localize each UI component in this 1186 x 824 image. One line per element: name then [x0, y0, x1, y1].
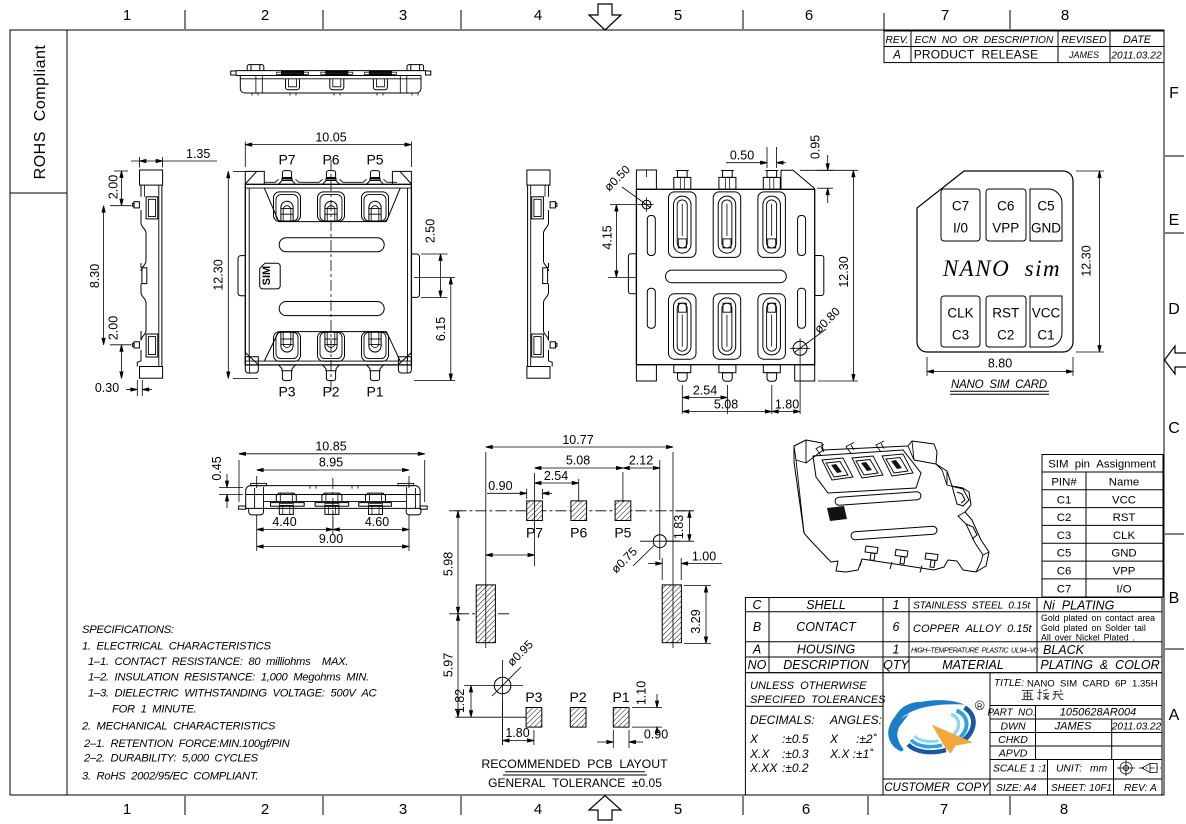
svg-text:5.97: 5.97 [442, 653, 456, 677]
svg-text:RST: RST [992, 306, 1019, 321]
svg-text:VCC: VCC [1112, 494, 1136, 506]
svg-text:CONTACT: CONTACT [796, 620, 857, 634]
svg-text:1: 1 [123, 801, 131, 818]
svg-text:VPP: VPP [992, 221, 1019, 236]
svg-text:6: 6 [893, 620, 900, 634]
svg-text:2.12: 2.12 [629, 454, 653, 468]
svg-text:ECN NO OR DESCRIPTION: ECN NO OR DESCRIPTION [915, 35, 1054, 46]
svg-text:CUSTOMER COPY: CUSTOMER COPY [884, 782, 990, 794]
svg-text:NO: NO [748, 658, 767, 672]
svg-text:10.85: 10.85 [315, 439, 346, 453]
svg-text:1: 1 [893, 643, 900, 657]
svg-text:SPECIFED TOLERANCES: SPECIFED TOLERANCES [750, 694, 886, 706]
svg-text:0.95: 0.95 [809, 135, 823, 159]
svg-text:SCALE 1 :1: SCALE 1 :1 [993, 764, 1047, 775]
svg-text:R: R [977, 701, 983, 710]
svg-text:1–3. DIELECTRIC WITHSTANDING: 1–3. DIELECTRIC WITHSTANDING VOLTAGE: 50… [88, 688, 378, 700]
svg-text:P7: P7 [526, 525, 543, 541]
svg-text:2. MECHANICAL CHARACTERISTIC: 2. MECHANICAL CHARACTERISTICS [81, 721, 276, 733]
svg-text::±0.2: :±0.2 [782, 761, 809, 775]
svg-text:1.35: 1.35 [186, 147, 210, 161]
svg-text:C6: C6 [997, 199, 1014, 214]
svg-text:GND: GND [1111, 548, 1136, 560]
svg-text::±0.3: :±0.3 [782, 747, 809, 761]
svg-text:1.83: 1.83 [672, 515, 686, 539]
svg-text:C5: C5 [1037, 199, 1054, 214]
svg-text:X: X [749, 732, 759, 746]
svg-text:CLK: CLK [1113, 530, 1136, 542]
svg-text:X.X: X.X [749, 747, 770, 761]
svg-text:Ni PLATING: Ni PLATING [1043, 599, 1115, 613]
svg-text:12.30: 12.30 [1080, 245, 1094, 276]
svg-text:NANO sim: NANO sim [942, 256, 1061, 281]
svg-text:1050628AR004: 1050628AR004 [1060, 707, 1136, 719]
svg-text:GND: GND [1031, 221, 1061, 236]
svg-text:7: 7 [940, 801, 948, 818]
svg-text:UNLESS OTHERWISE: UNLESS OTHERWISE [750, 680, 867, 692]
svg-text:8: 8 [1060, 801, 1068, 818]
svg-text:NANO SIM CARD 6P 1.35H: NANO SIM CARD 6P 1.35H [1027, 679, 1158, 690]
svg-text:5.98: 5.98 [442, 552, 456, 576]
svg-text:C7: C7 [952, 199, 969, 214]
svg-text:C2: C2 [997, 328, 1014, 343]
svg-text:C5: C5 [1057, 548, 1072, 560]
svg-text:ø0.50: ø0.50 [601, 162, 633, 194]
svg-text:CHKD: CHKD [998, 734, 1028, 746]
svg-text:SHELL: SHELL [806, 598, 846, 612]
svg-text:JAMES: JAMES [1054, 721, 1092, 733]
svg-text:BLACK: BLACK [1043, 643, 1085, 657]
svg-text:0.90: 0.90 [644, 728, 668, 742]
svg-text:C2: C2 [1057, 512, 1072, 524]
svg-text:B: B [753, 620, 761, 634]
svg-text:6: 6 [802, 801, 810, 818]
svg-text:VPP: VPP [1113, 566, 1136, 578]
svg-text:12.30: 12.30 [212, 259, 226, 290]
svg-text:Gold plated on contact area: Gold plated on contact area [1041, 613, 1155, 623]
svg-text:P2: P2 [570, 689, 587, 705]
svg-text:P7: P7 [278, 152, 295, 168]
svg-text:8.30: 8.30 [88, 264, 102, 288]
svg-text:5: 5 [674, 801, 682, 818]
svg-text:2.00: 2.00 [107, 316, 121, 340]
svg-text:1.80: 1.80 [505, 726, 529, 740]
svg-text:DATE: DATE [1123, 34, 1152, 46]
svg-text:C: C [1168, 420, 1180, 437]
svg-text:JAMES: JAMES [1068, 50, 1099, 60]
svg-text:MATERIAL: MATERIAL [942, 658, 1004, 672]
svg-text:STAINLESS STEEL 0.15t: STAINLESS STEEL 0.15t [913, 601, 1031, 612]
svg-text:QTY: QTY [883, 658, 910, 672]
svg-text:SPECIFICATIONS:: SPECIFICATIONS: [82, 624, 174, 636]
svg-text:0.50: 0.50 [730, 149, 754, 163]
svg-text:0.45: 0.45 [210, 456, 224, 480]
svg-text:PIN#: PIN# [1051, 477, 1077, 489]
svg-text:P5: P5 [366, 152, 383, 168]
svg-text:P6: P6 [322, 152, 339, 168]
svg-text:C1: C1 [1037, 328, 1054, 343]
svg-text:SIM pin Assignment: SIM pin Assignment [1048, 459, 1156, 471]
svg-text:PRODUCT RELEASE: PRODUCT RELEASE [914, 48, 1039, 62]
svg-text:DESCRIPTION: DESCRIPTION [783, 658, 869, 672]
svg-text:5.08: 5.08 [566, 454, 590, 468]
svg-text:FOR 1 MINUTE.: FOR 1 MINUTE. [112, 704, 197, 716]
svg-text:C: C [752, 598, 762, 612]
svg-text:P5: P5 [614, 525, 631, 541]
svg-text:SIM: SIM [261, 266, 273, 286]
svg-text:X.X :±1˚: X.X :±1˚ [829, 747, 874, 761]
svg-text:8.80: 8.80 [988, 357, 1012, 371]
svg-text:REV: A: REV: A [1124, 783, 1157, 794]
svg-text:PLATING & COLOR: PLATING & COLOR [1040, 658, 1159, 672]
svg-text:D: D [1168, 301, 1180, 318]
svg-text:SHEET: 10F1: SHEET: 10F1 [1051, 783, 1112, 794]
svg-text:C3: C3 [952, 328, 969, 343]
svg-text:8.95: 8.95 [319, 456, 343, 470]
svg-text:COPPER ALLOY 0.15t: COPPER ALLOY 0.15t [913, 623, 1033, 635]
svg-text:2–2. DURABILITY: 5,000 CYCL: 2–2. DURABILITY: 5,000 CYCLES [83, 753, 259, 765]
svg-text:2.00: 2.00 [107, 175, 121, 199]
svg-text:A: A [892, 50, 901, 62]
svg-text:6.15: 6.15 [434, 317, 448, 341]
svg-text:REVISED: REVISED [1061, 35, 1107, 46]
svg-text:ø0.80: ø0.80 [811, 304, 843, 336]
svg-text:7: 7 [941, 7, 949, 24]
svg-text:9.00: 9.00 [319, 532, 343, 546]
svg-text:5: 5 [674, 7, 682, 24]
svg-text:10.77: 10.77 [562, 433, 593, 447]
svg-text:HOUSING: HOUSING [797, 643, 856, 657]
svg-text:I/O: I/O [1116, 583, 1131, 595]
svg-text:I/0: I/0 [953, 221, 968, 236]
svg-text:2011.03.22: 2011.03.22 [1110, 51, 1162, 62]
svg-text:1. ELECTRICAL CHARACTERISTIC: 1. ELECTRICAL CHARACTERISTICS [82, 641, 271, 653]
svg-text:GENERAL TOLERANCE ±0.05: GENERAL TOLERANCE ±0.05 [488, 776, 662, 790]
svg-text:P1: P1 [613, 689, 630, 705]
svg-text:6: 6 [805, 7, 813, 24]
svg-text:ø0.75: ø0.75 [608, 544, 640, 576]
svg-text:12.30: 12.30 [837, 256, 851, 287]
svg-text:1.80: 1.80 [775, 397, 799, 411]
svg-text:P3: P3 [278, 384, 295, 400]
svg-text:REV.: REV. [885, 35, 908, 46]
svg-text:NANO SIM CARD: NANO SIM CARD [951, 379, 1047, 391]
svg-text:SIZE: A4: SIZE: A4 [996, 783, 1037, 794]
svg-text:TITLE:: TITLE: [994, 678, 1024, 689]
svg-text:P2: P2 [322, 384, 339, 400]
svg-text::±0.5: :±0.5 [782, 732, 809, 746]
svg-text:5.08: 5.08 [714, 397, 738, 411]
svg-text:Gold plated on Solder tail: Gold plated on Solder tail [1041, 623, 1146, 633]
svg-text:VCC: VCC [1032, 306, 1061, 321]
svg-text:2011.03.22: 2011.03.22 [1111, 722, 1162, 733]
svg-text:2: 2 [261, 7, 269, 24]
svg-text:2.50: 2.50 [424, 219, 438, 243]
svg-text:ø0.95: ø0.95 [504, 637, 536, 669]
svg-text:UNIT:: UNIT: [1056, 764, 1082, 775]
svg-text:4: 4 [534, 7, 542, 24]
svg-text:APVD: APVD [998, 748, 1028, 760]
svg-text:C3: C3 [1057, 530, 1072, 542]
svg-text:3. RoHS 2002/95/EC COMPLIAN: 3. RoHS 2002/95/EC COMPLIANT. [82, 771, 258, 783]
svg-text:4.15: 4.15 [601, 225, 615, 249]
svg-text:8: 8 [1061, 7, 1069, 24]
svg-text:All over Nickel Plated .: All over Nickel Plated . [1041, 633, 1135, 643]
svg-text:A: A [752, 643, 761, 657]
svg-text:P6: P6 [570, 525, 587, 541]
svg-text:X.XX: X.XX [749, 761, 778, 775]
svg-text::±2˚: :±2˚ [856, 732, 878, 746]
svg-text:2.54: 2.54 [544, 469, 568, 483]
svg-text:ROHS Compliant: ROHS Compliant [32, 45, 49, 180]
svg-text:PART NO.: PART NO. [987, 708, 1035, 719]
svg-text:CLK: CLK [947, 306, 973, 321]
svg-text:1–1. CONTACT RESISTANCE: 80: 1–1. CONTACT RESISTANCE: 80 milliohms MA… [88, 656, 348, 668]
svg-text:RECOMMENDED PCB LAYOUT: RECOMMENDED PCB LAYOUT [481, 757, 668, 771]
svg-text:0.30: 0.30 [95, 381, 119, 395]
svg-text:3: 3 [399, 801, 407, 818]
svg-text:2–1. RETENTION FORCE:MIN.100: 2–1. RETENTION FORCE:MIN.100gf/PIN [83, 738, 291, 750]
svg-text:DWN: DWN [1000, 721, 1025, 733]
svg-text:C1: C1 [1057, 494, 1072, 506]
svg-text:mm: mm [1090, 764, 1108, 775]
svg-text:HIGH–TEMPERATURE PLASTIC UL9: HIGH–TEMPERATURE PLASTIC UL94–V0 [911, 647, 1038, 655]
svg-text:RST: RST [1113, 512, 1136, 524]
svg-text:10.05: 10.05 [315, 131, 346, 145]
svg-text:1–2. INSULATION RESISTANCE:: 1–2. INSULATION RESISTANCE: 1,000 Megohm… [88, 672, 369, 684]
svg-text:3.29: 3.29 [689, 609, 703, 633]
svg-text:0.90: 0.90 [488, 479, 512, 493]
svg-text:B: B [1169, 590, 1180, 607]
svg-text:4.60: 4.60 [365, 515, 389, 529]
svg-text:X: X [829, 732, 839, 746]
svg-text:C6: C6 [1057, 566, 1072, 578]
svg-text:1.10: 1.10 [635, 681, 649, 705]
svg-text:F: F [1169, 85, 1179, 102]
svg-text:E: E [1169, 212, 1180, 229]
svg-text:2: 2 [261, 801, 269, 818]
svg-text:ANGLES:: ANGLES: [829, 713, 882, 727]
svg-text:Name: Name [1109, 477, 1139, 489]
svg-text:DECIMALS:: DECIMALS: [750, 713, 815, 727]
svg-text:A: A [1169, 707, 1180, 724]
svg-text:2.54: 2.54 [693, 384, 717, 398]
svg-text:4: 4 [534, 801, 542, 818]
svg-text:P1: P1 [366, 384, 383, 400]
svg-text:P3: P3 [525, 689, 542, 705]
svg-text:1: 1 [123, 7, 131, 24]
svg-text:1: 1 [893, 598, 900, 612]
svg-text:3: 3 [399, 7, 407, 24]
svg-text:1.82: 1.82 [453, 689, 467, 713]
svg-text:C7: C7 [1057, 583, 1072, 595]
svg-text:4.40: 4.40 [272, 515, 296, 529]
svg-text:1.00: 1.00 [692, 550, 716, 564]
